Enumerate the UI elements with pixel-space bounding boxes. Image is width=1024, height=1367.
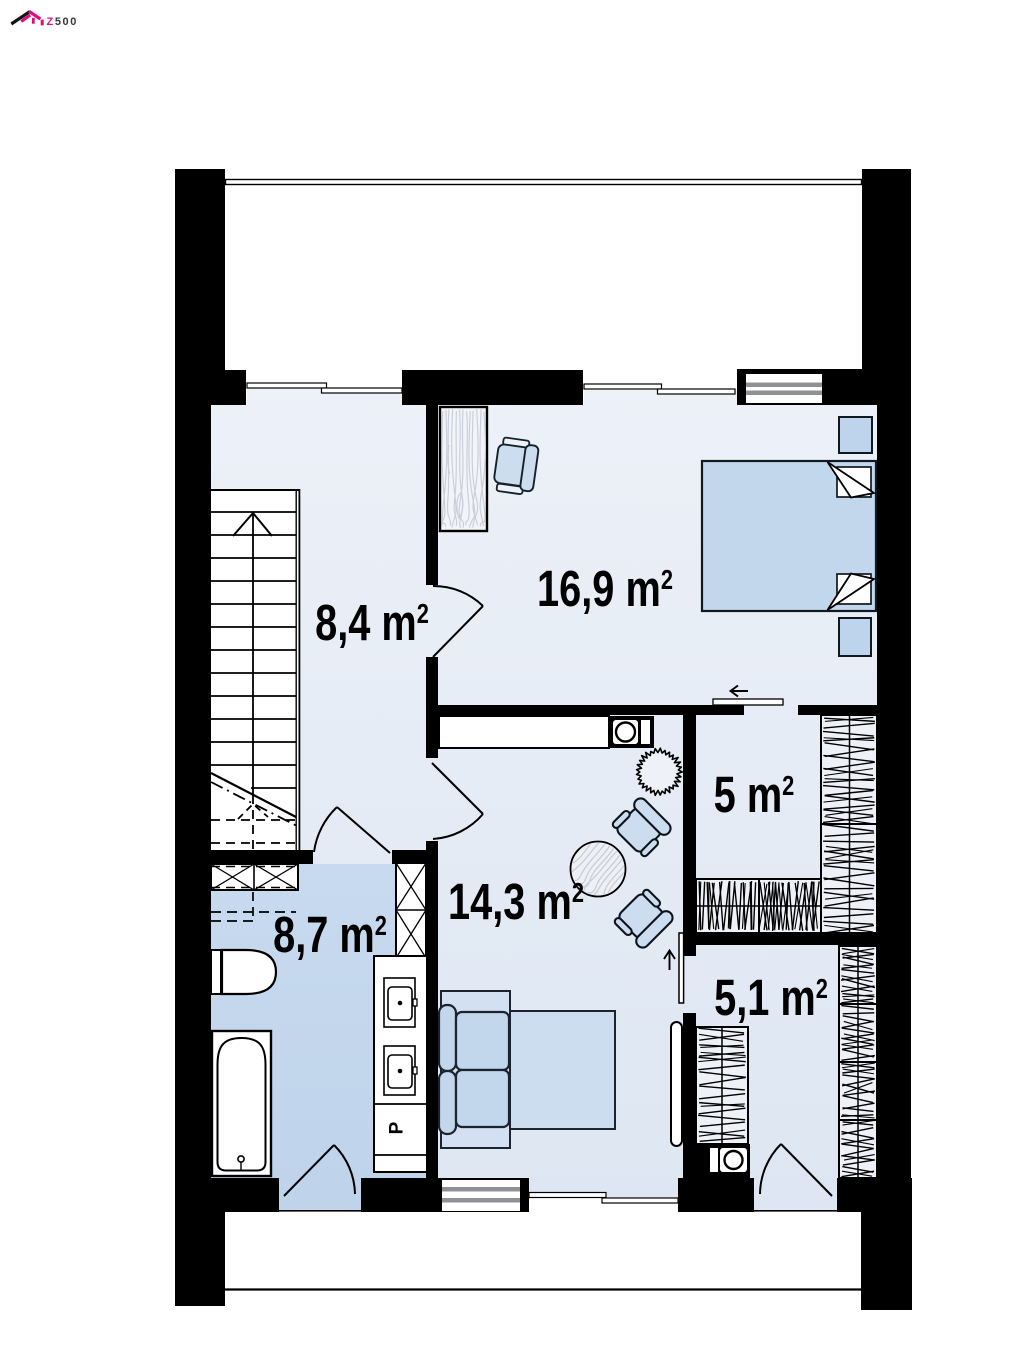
svg-text:P: P	[387, 1121, 408, 1134]
svg-text:16,9 m2: 16,9 m2	[537, 560, 673, 617]
svg-text:14,3 m2: 14,3 m2	[448, 873, 584, 930]
svg-text:8,4 m2: 8,4 m2	[315, 594, 429, 651]
svg-text:5,1 m2: 5,1 m2	[714, 969, 828, 1026]
svg-text:8,7 m2: 8,7 m2	[273, 906, 387, 963]
svg-text:Z500: Z500	[47, 16, 78, 28]
